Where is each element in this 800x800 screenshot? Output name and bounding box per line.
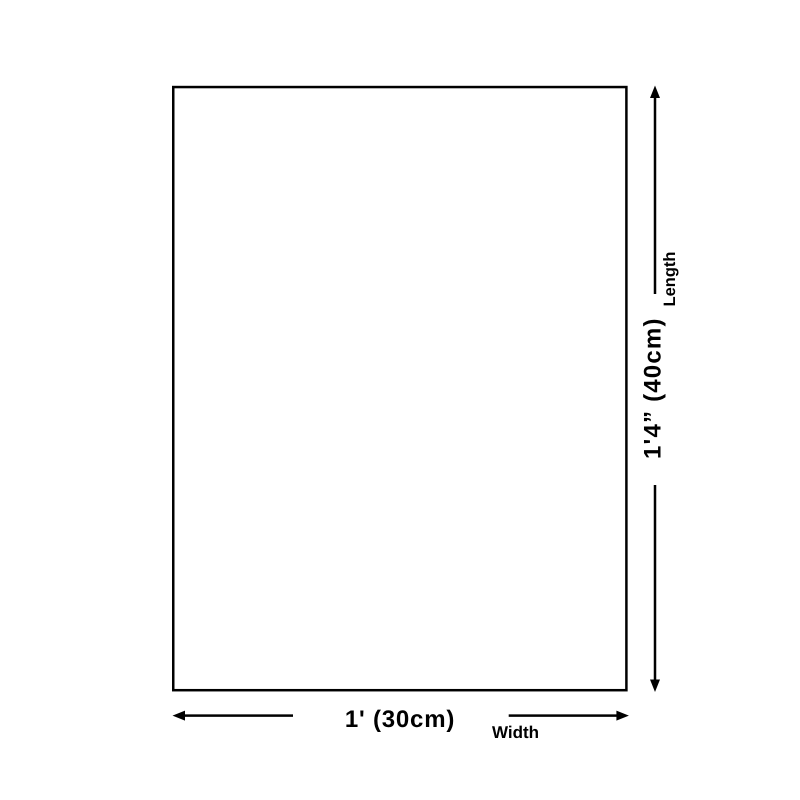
svg-text:1' (30cm): 1' (30cm) xyxy=(345,706,455,733)
svg-text:1'4” (40cm): 1'4” (40cm) xyxy=(640,317,667,459)
svg-text:Length: Length xyxy=(661,252,679,307)
svg-text:Width: Width xyxy=(492,723,539,742)
